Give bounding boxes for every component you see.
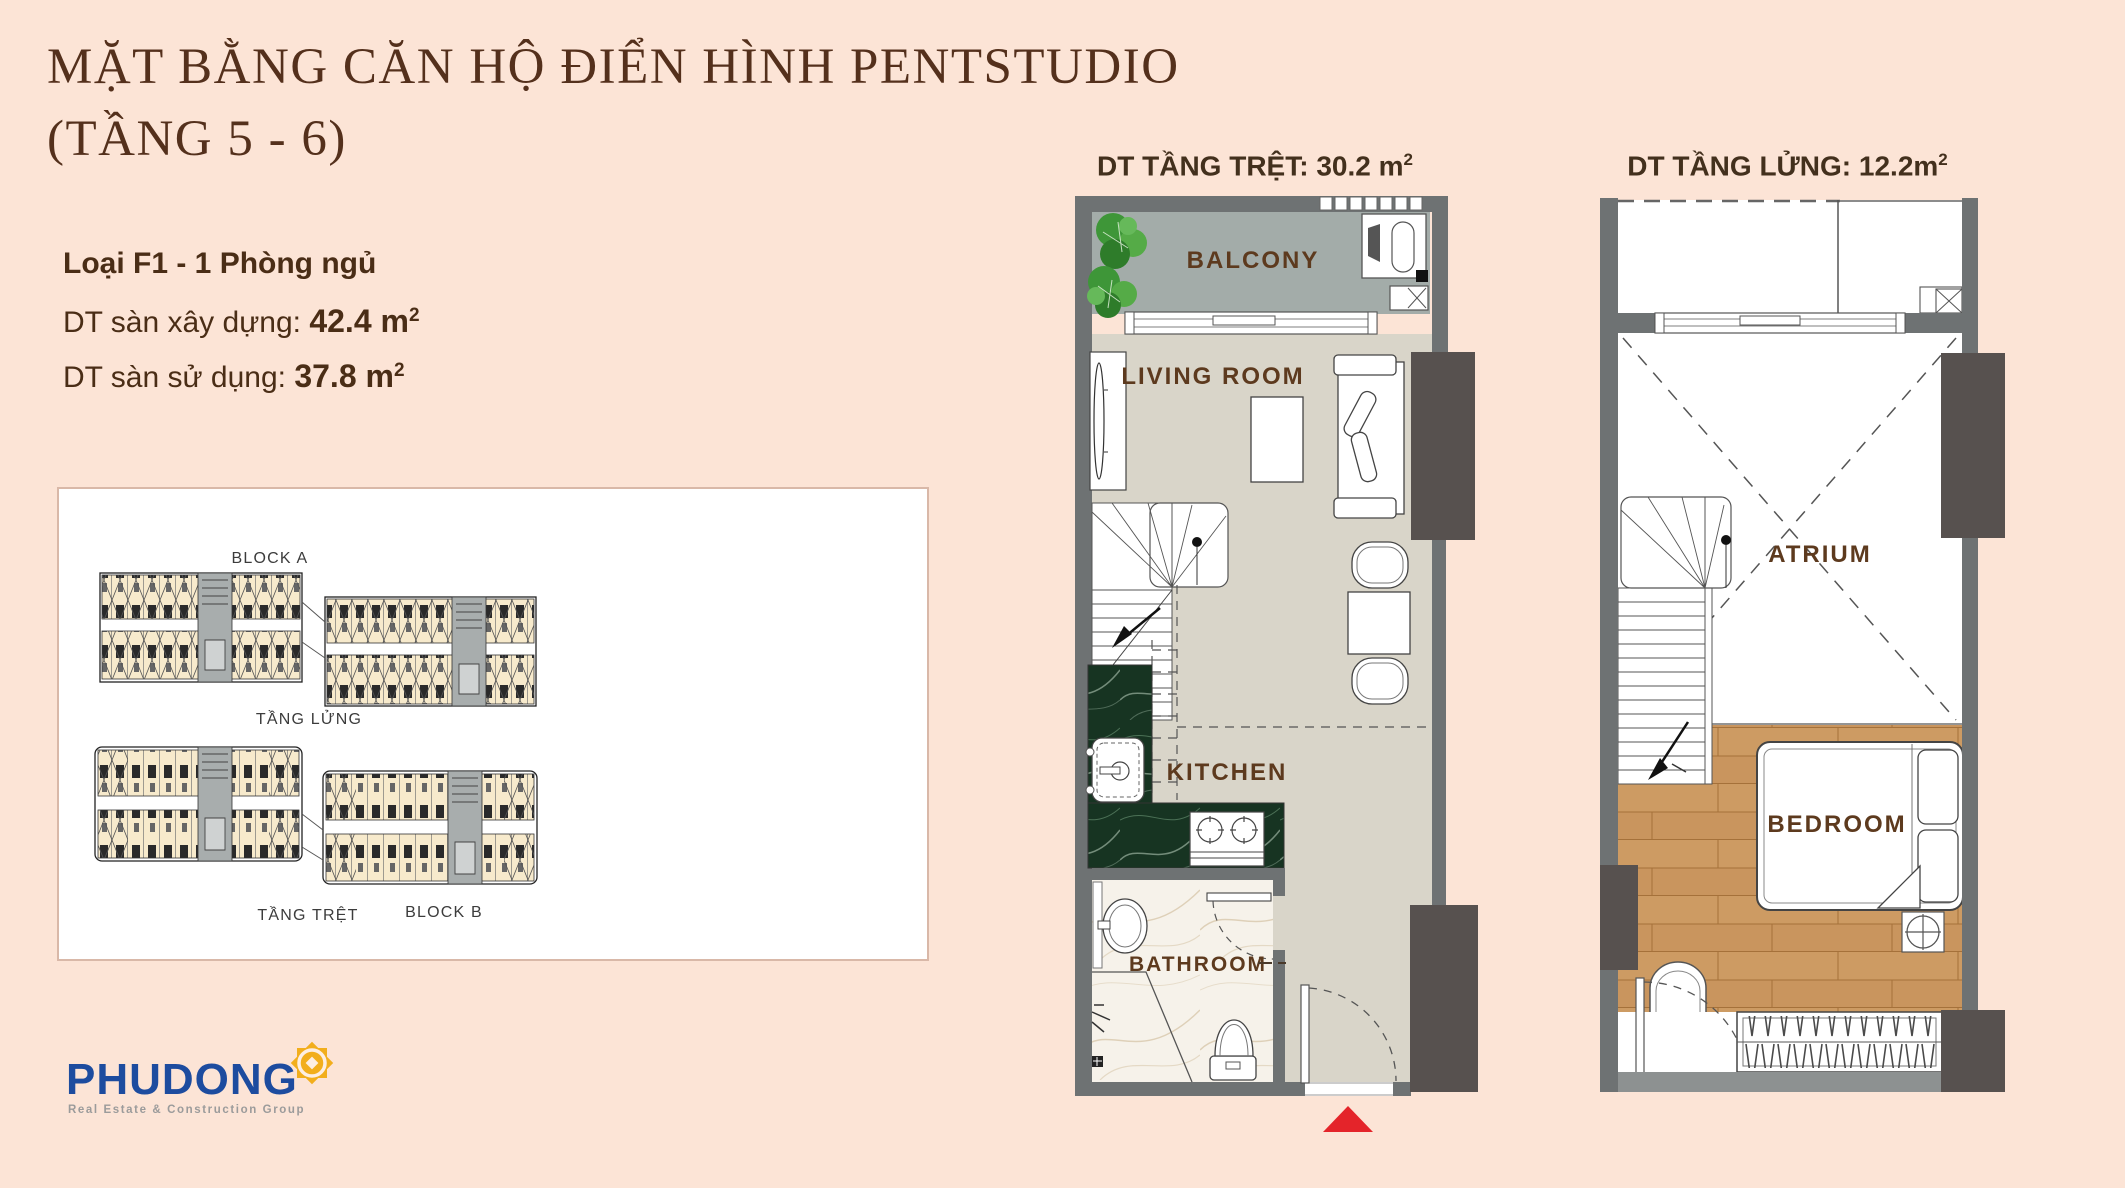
atrium-label: ATRIUM	[1768, 541, 1872, 568]
wardrobe	[1737, 1012, 1942, 1072]
sun-logo-icon	[289, 1040, 335, 1086]
ground-plan-title: DT TẦNG TRỆT: 30.2 m2	[1070, 150, 1440, 182]
entrance-arrow-icon	[1323, 1106, 1373, 1132]
dining-set	[1348, 542, 1410, 704]
keyplan-strip-b-ground	[323, 771, 537, 884]
kitchen-sink	[1086, 738, 1144, 802]
mezzanine-plan-title: DT TẦNG LỬNG: 12.2m2	[1600, 150, 1975, 182]
column	[1411, 352, 1475, 540]
bedroom-label: BEDROOM	[1767, 811, 1906, 838]
bathroom-label: BATHROOM	[1129, 953, 1267, 976]
usable-area-label: DT sàn sử dụng:	[63, 361, 286, 394]
column	[1941, 1010, 2005, 1092]
keyplan-mezzanine-label: TẦNG LỬNG	[256, 709, 362, 728]
keyplan-strip-a-ground	[95, 747, 302, 861]
usable-area-value: 37.8 m	[294, 358, 394, 394]
ground-plan-title-value: 30.2 m	[1316, 150, 1403, 181]
living-room-label: LIVING ROOM	[1121, 363, 1304, 390]
mezzanine-plan-title-value: 12.2m	[1859, 150, 1938, 181]
ground-plan-title-sup: 2	[1404, 150, 1413, 169]
entry-threshold	[1305, 1082, 1393, 1096]
built-area-sup: 2	[409, 305, 420, 326]
unit-type-label: Loại F1 - 1 Phòng ngủ	[63, 247, 376, 281]
coffee-table	[1251, 397, 1303, 482]
keyplan-drawing: BLOCK A TẦNG LỬNG TẦNG TRỆT BLOCK B	[59, 489, 927, 959]
ac-niche	[1920, 287, 1962, 313]
sofa	[1334, 355, 1404, 518]
keyplan-connectors	[302, 602, 325, 860]
stove	[1190, 812, 1264, 866]
column	[1941, 353, 2005, 538]
fan-symbol	[1902, 912, 1944, 952]
built-area-line: DT sàn xây dựng: 42.4 m2	[63, 303, 420, 340]
mezzanine-window	[1655, 313, 1905, 333]
page-title-line2: (TẦNG 5 - 6)	[47, 110, 347, 168]
ground-plan-title-label: DT TẦNG TRỆT:	[1097, 150, 1309, 181]
keyplan-block-a-label: BLOCK A	[232, 550, 309, 567]
usable-area-sup: 2	[394, 360, 405, 381]
column	[1600, 865, 1638, 970]
logo-wordmark: PHUDONG	[66, 1055, 298, 1105]
built-area-value: 42.4 m	[309, 303, 409, 339]
built-area-label: DT sàn xây dựng:	[63, 306, 301, 339]
mezzanine-plan-title-sup: 2	[1938, 150, 1947, 169]
column	[1410, 905, 1478, 1092]
page-title-line1: MẶT BẰNG CĂN HỘ ĐIỂN HÌNH PENTSTUDIO	[47, 38, 1180, 96]
keyplan-block-b-label: BLOCK B	[405, 904, 483, 921]
vanity-basin	[1650, 962, 1706, 1012]
keyplan-panel: BLOCK A TẦNG LỬNG TẦNG TRỆT BLOCK B	[57, 487, 929, 961]
balcony-label: BALCONY	[1187, 247, 1320, 274]
balcony-railing	[1320, 197, 1422, 210]
ground-floor-plan: BALCONY LIVING ROOM	[1070, 190, 1490, 1140]
usable-area-line: DT sàn sử dụng: 37.8 m2	[63, 358, 405, 395]
keyplan-strip-b-mezzanine	[325, 597, 536, 706]
keyplan-ground-label: TẦNG TRỆT	[257, 905, 358, 924]
keyplan-strip-a-mezzanine	[100, 573, 302, 682]
poster: MẶT BẰNG CĂN HỘ ĐIỂN HÌNH PENTSTUDIO (TẦ…	[0, 0, 2125, 1188]
logo-tagline: Real Estate & Construction Group	[68, 1104, 305, 1116]
mezzanine-floor-plan: ATRIUM	[1595, 190, 2007, 1100]
living-window	[1125, 312, 1377, 334]
kitchen-label: KITCHEN	[1167, 759, 1288, 786]
mezzanine-plan-title-label: DT TẦNG LỬNG:	[1627, 150, 1851, 181]
